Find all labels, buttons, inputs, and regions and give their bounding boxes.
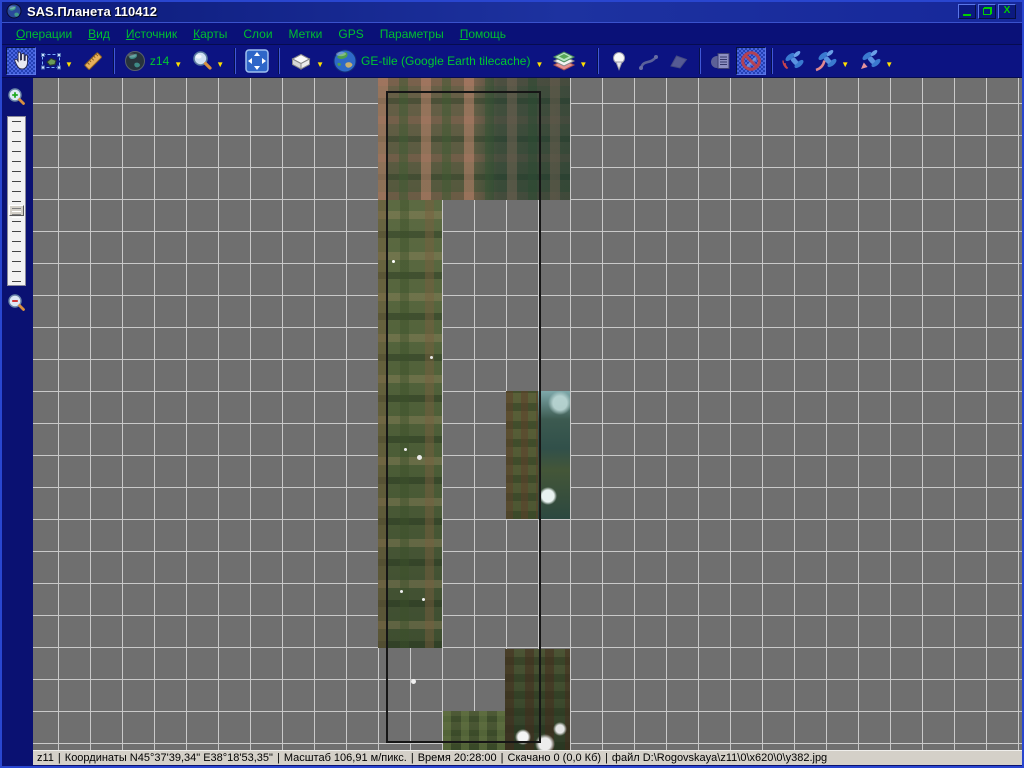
download-list-button[interactable] [706, 47, 736, 75]
status-file: файл D:\Rogovskaya\z11\0\x620\0\y382.jpg [612, 752, 827, 764]
map-source-label: GE-tile (Google Earth tilecache) [361, 54, 530, 68]
zoom-slider[interactable] [7, 116, 26, 286]
menu-item-gps[interactable]: GPS [330, 25, 371, 43]
cache-type-selector[interactable]: ▼ [285, 47, 329, 75]
gps-position-button[interactable]: ▼ [854, 47, 898, 75]
menu-item-source[interactable]: Источник [118, 25, 185, 43]
fullscreen-icon [244, 48, 270, 74]
map-canvas[interactable] [33, 78, 1024, 750]
layers-dropdown-icon[interactable]: ▼ [579, 61, 587, 69]
hand-tool-button[interactable] [6, 47, 36, 75]
zoom-slider-ticks [12, 117, 21, 285]
hand-tool-icon [9, 49, 33, 73]
gps-track-icon [813, 48, 839, 74]
route-button[interactable] [634, 47, 664, 75]
magnifier-icon [190, 49, 214, 73]
map-source-selector[interactable]: GE-tile (Google Earth tilecache) ▼ [329, 47, 548, 75]
toolbar-separator [113, 48, 115, 74]
toolbar-separator [771, 48, 773, 74]
gps-track-dropdown-icon[interactable]: ▼ [841, 61, 849, 69]
status-zoom: z11 [37, 752, 54, 764]
toolbar-separator [597, 48, 599, 74]
earth-source-icon [332, 48, 358, 74]
download-selection-rectangle[interactable] [386, 91, 541, 743]
zoom-out-button[interactable] [6, 292, 28, 314]
route-icon [637, 49, 661, 73]
layers-selector[interactable]: ▼ [548, 47, 592, 75]
minimize-icon [963, 14, 971, 16]
status-bar: z11 | Координаты N45°37'39,34" E38°18'53… [33, 750, 1022, 765]
zoom-slider-thumb[interactable] [9, 205, 24, 216]
polygon-button[interactable] [664, 47, 694, 75]
title-bar: SAS.Планета 110412 X [0, 0, 1024, 22]
restore-button[interactable] [978, 4, 996, 19]
ruler-tool-button[interactable] [78, 47, 108, 75]
window-title: SAS.Планета 110412 [27, 4, 157, 19]
magnifier-button[interactable]: ▼ [187, 47, 229, 75]
status-separator: | [58, 752, 61, 764]
gps-connect-button[interactable] [778, 47, 810, 75]
menu-item-marks[interactable]: Метки [281, 25, 331, 43]
status-downloaded: Скачано 0 (0,0 Кб) [508, 752, 602, 764]
menu-item-operations[interactable]: Операции [8, 25, 80, 43]
menu-item-layers[interactable]: Слои [235, 25, 280, 43]
zoom-dropdown-icon[interactable]: ▼ [174, 61, 182, 69]
gps-track-button[interactable]: ▼ [810, 47, 854, 75]
status-separator: | [605, 752, 608, 764]
zoom-in-button[interactable] [6, 86, 28, 108]
magnifier-dropdown-icon[interactable]: ▼ [216, 61, 224, 69]
app-globe-icon [6, 3, 22, 19]
cache-dropdown-icon[interactable]: ▼ [316, 61, 324, 69]
gps-position-icon [857, 48, 883, 74]
status-separator: | [277, 752, 280, 764]
status-time: Время 20:28:00 [418, 752, 497, 764]
layers-stack-icon [551, 48, 577, 74]
minimize-button[interactable] [958, 4, 976, 19]
zoom-level-label: z14 [150, 54, 169, 68]
zoom-level-selector[interactable]: z14 ▼ [120, 47, 187, 75]
menu-item-maps[interactable]: Карты [185, 25, 235, 43]
toolbar-separator [699, 48, 701, 74]
cache-box-icon [288, 49, 314, 73]
close-icon: X [1004, 6, 1011, 16]
placemark-icon [607, 49, 631, 73]
toolbar: ▼ z14 ▼ ▼ [0, 44, 1024, 78]
gps-connect-icon [781, 48, 807, 74]
ruler-icon [81, 49, 105, 73]
selection-tool-button[interactable]: ▼ [36, 47, 78, 75]
toolbar-separator [234, 48, 236, 74]
download-list-icon [709, 49, 733, 73]
menu-item-view[interactable]: Вид [80, 25, 118, 43]
stop-download-button[interactable] [736, 47, 766, 75]
zoom-sidebar [0, 78, 33, 768]
selection-dropdown-icon[interactable]: ▼ [65, 61, 73, 69]
fullscreen-button[interactable] [241, 47, 273, 75]
status-separator: | [411, 752, 414, 764]
menu-item-help[interactable]: Помощь [452, 25, 514, 43]
menu-item-options[interactable]: Параметры [372, 25, 452, 43]
status-coordinates: Координаты N45°37'39,34" E38°18'53,35" [65, 752, 273, 764]
map-source-dropdown-icon[interactable]: ▼ [535, 61, 543, 69]
restore-icon [983, 7, 992, 15]
status-separator: | [501, 752, 504, 764]
stop-download-icon [739, 49, 763, 73]
gps-position-dropdown-icon[interactable]: ▼ [885, 61, 893, 69]
selection-tool-icon [39, 49, 63, 73]
close-button[interactable]: X [998, 4, 1016, 19]
globe-zoom-icon [123, 49, 147, 73]
toolbar-separator [278, 48, 280, 74]
placemark-button[interactable] [604, 47, 634, 75]
menu-bar: Операции Вид Источник Карты Слои Метки G… [0, 22, 1024, 44]
satellite-tile-middle-water [538, 391, 570, 519]
status-scale: Масштаб 106,91 м/пикс. [284, 752, 407, 764]
polygon-icon [667, 49, 691, 73]
